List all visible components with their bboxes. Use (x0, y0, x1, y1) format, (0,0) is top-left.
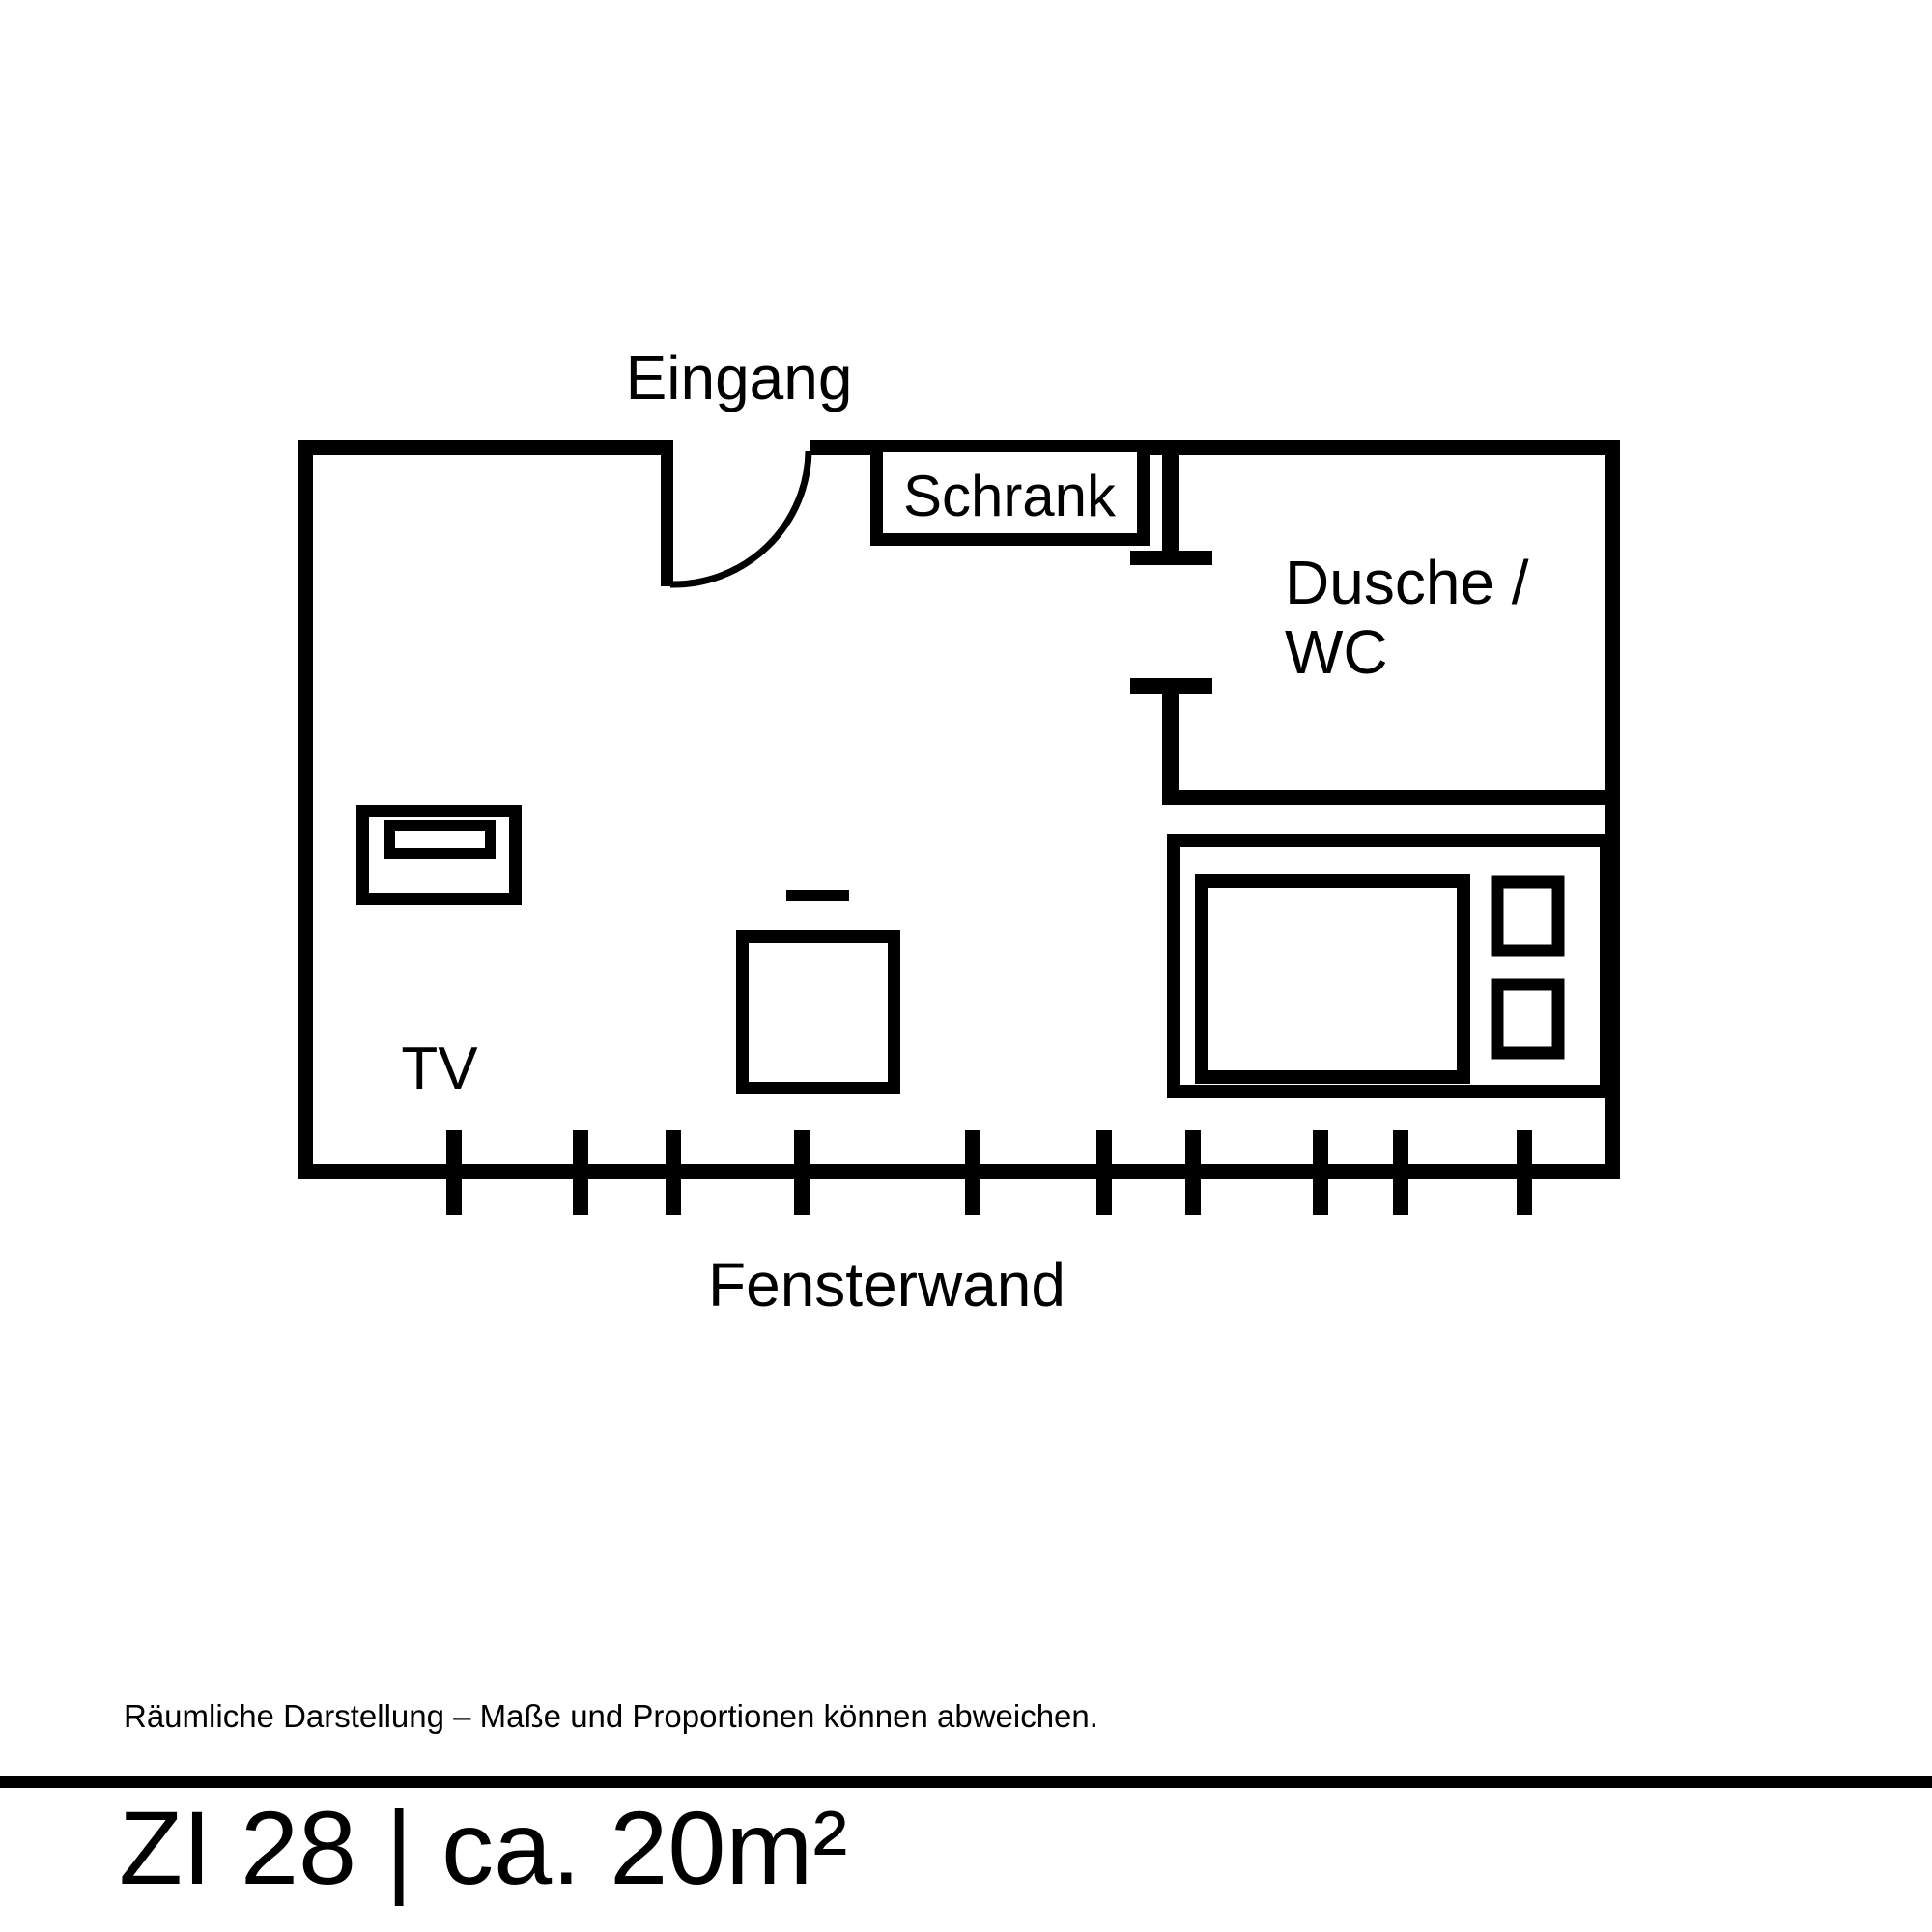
window-tick (965, 1130, 980, 1215)
wardrobe-label: Schrank (903, 464, 1117, 528)
room-title: ZI 28 | ca. 20m² (119, 1789, 847, 1906)
entrance-door (661, 451, 809, 586)
floor-plan-page: Schrank TV Eingang Dusche / WC Fensterwa… (0, 0, 1932, 1932)
footer-divider (0, 1776, 1932, 1788)
bathroom-label-line2: WC (1285, 617, 1388, 687)
window-tick (1096, 1130, 1112, 1215)
window-tick (666, 1130, 681, 1215)
table-dash (786, 890, 849, 901)
bed-side-square-bottom (1497, 984, 1558, 1053)
window-tick (1393, 1130, 1408, 1215)
entrance-label: Eingang (626, 343, 853, 412)
window-tick (1517, 1130, 1532, 1215)
bed-side-square-top (1497, 882, 1558, 951)
window-tick (1185, 1130, 1201, 1215)
top-wall-left-segment (298, 440, 673, 455)
tv-label: TV (401, 1036, 478, 1102)
partition-wall-lower (1162, 694, 1179, 805)
bathroom-bottom-wall (1162, 790, 1620, 805)
window-tick (1313, 1130, 1328, 1215)
partition-wall-upper (1162, 440, 1179, 551)
window-tick (573, 1130, 588, 1215)
bathroom-label-line1: Dusche / (1285, 548, 1529, 617)
window-wall-label: Fensterwand (708, 1250, 1065, 1320)
window-tick (446, 1130, 462, 1215)
tv-unit: TV (363, 811, 516, 1103)
door-leaf (661, 454, 673, 586)
floor-plan-drawing: Schrank TV Eingang Dusche / WC Fensterwa… (0, 0, 1932, 1932)
wardrobe: Schrank (877, 446, 1144, 540)
disclaimer-text: Räumliche Darstellung – Maße und Proport… (124, 1698, 1098, 1734)
left-wall (298, 440, 313, 1179)
table-box (743, 937, 895, 1089)
partition-jamb-upper (1130, 551, 1212, 565)
bottom-window-wall (298, 1164, 1620, 1179)
tv-screen (390, 826, 491, 854)
bed-unit (1174, 840, 1606, 1092)
door-swing-arc (670, 451, 809, 584)
window-tick (794, 1130, 810, 1215)
partition-jamb-lower (1130, 678, 1212, 694)
table-unit (743, 890, 895, 1089)
bed-mattress (1202, 881, 1463, 1077)
